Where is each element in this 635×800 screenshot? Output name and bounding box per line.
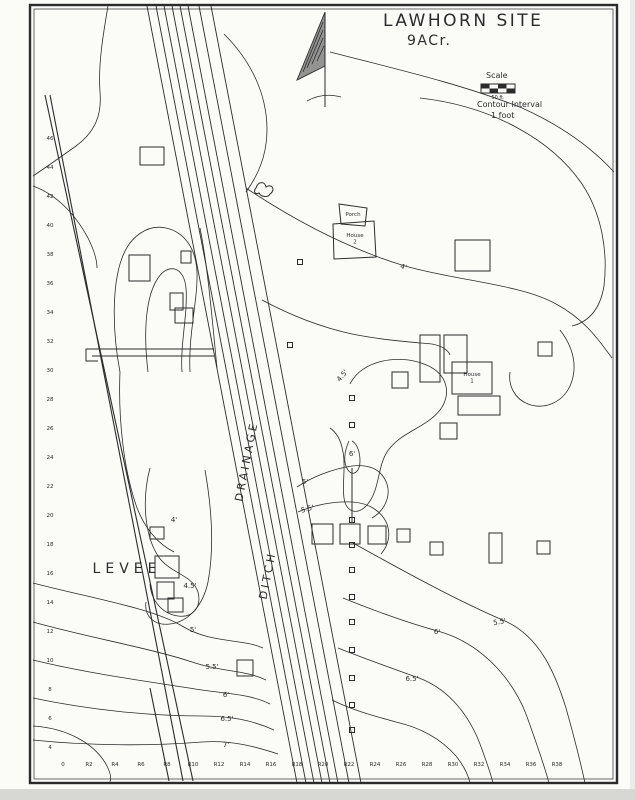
house-label: House2	[346, 233, 364, 246]
contour-elevation-label: 6.5'	[220, 715, 233, 723]
contour-line	[33, 6, 108, 176]
contour-line	[330, 52, 614, 172]
building-outline	[392, 372, 408, 388]
paper-edge-shadow-bottom	[0, 789, 635, 800]
axis-label-bottom: R14	[240, 762, 251, 768]
axis-label-left: 26	[47, 426, 54, 432]
scale-bar-segment	[507, 89, 516, 94]
axis-label-left: 30	[47, 368, 54, 374]
house-label: Porch	[345, 212, 361, 218]
building-outline	[420, 335, 440, 382]
contour-line	[145, 468, 199, 616]
drainage-ditch-line	[211, 6, 361, 783]
building-outline	[440, 423, 457, 439]
map-border-inner	[34, 9, 613, 779]
contour-line	[33, 726, 111, 783]
contour-elevation-label: 4'	[399, 262, 407, 271]
axis-label-left: 14	[47, 600, 54, 606]
map-title: LAWHORN SITE	[383, 11, 543, 31]
drainage-ditch-line	[156, 6, 306, 783]
axis-label-left: 22	[47, 484, 54, 490]
grid-stake-marker	[288, 343, 293, 348]
grid-stake-marker	[350, 568, 355, 573]
contour-line	[246, 188, 612, 358]
axis-label-left: 34	[47, 310, 54, 316]
axis-label-left: 10	[47, 658, 54, 664]
scale-label: Scale	[486, 71, 508, 80]
axis-label-left: 40	[47, 223, 54, 229]
axis-label-bottom: R34	[500, 762, 511, 768]
axis-label-bottom: R10	[188, 762, 199, 768]
axis-label-bottom: R2	[85, 762, 92, 768]
axis-label-left: 8	[48, 687, 52, 693]
axis-label-bottom: R16	[266, 762, 277, 768]
building-outline	[129, 255, 150, 281]
drainage-ditch-line	[147, 6, 297, 783]
axis-label-left: 24	[47, 455, 54, 461]
grid-stake-marker	[350, 423, 355, 428]
building-outline	[489, 533, 502, 563]
axis-label-bottom: R22	[344, 762, 355, 768]
contour-elevation-label: 6'	[223, 691, 229, 699]
building-outline	[181, 251, 191, 263]
building-outline	[537, 541, 550, 554]
drainage-ditch-line	[180, 6, 330, 783]
grid-stake-marker	[350, 648, 355, 653]
drainage-ditch-line	[164, 6, 314, 783]
drainage-label: DRAINAGE	[232, 420, 260, 502]
building-outline	[430, 542, 443, 555]
axis-label-bottom: R8	[163, 762, 171, 768]
axis-label-bottom: R32	[474, 762, 485, 768]
house-label: House1	[463, 372, 481, 385]
axis-label-left: 6	[48, 716, 52, 722]
site-map-canvas: 50 ft.LEVEEDRAINAGEDITCH4'4'4.5'4.5'5'5.…	[0, 0, 635, 800]
contour-line	[262, 300, 450, 355]
building-outline	[170, 293, 183, 310]
grid-stake-marker	[350, 620, 355, 625]
contour-line	[33, 740, 278, 754]
contour-line	[510, 330, 574, 406]
ditch-label: DITCH	[257, 550, 279, 600]
contour-line	[33, 186, 97, 268]
contour-elevation-label: 4.5'	[335, 368, 350, 383]
axis-label-left: 42	[47, 194, 54, 200]
contour-elevation-label: 4'	[171, 516, 177, 524]
building-outline	[538, 342, 552, 356]
contour-line	[338, 648, 493, 783]
scale-bar-segment	[498, 84, 507, 89]
scale-bar-segment	[481, 84, 490, 89]
axis-label-left: 44	[47, 165, 54, 171]
axis-label-bottom: R12	[214, 762, 225, 768]
grid-stake-marker	[350, 595, 355, 600]
contour-line	[420, 98, 605, 326]
axis-label-left: 36	[47, 281, 54, 287]
axis-label-bottom: R6	[137, 762, 145, 768]
contour-line	[33, 622, 266, 680]
axis-label-left: 28	[47, 397, 54, 403]
axis-label-bottom: R36	[526, 762, 537, 768]
axis-label-bottom: R38	[552, 762, 563, 768]
building-outline	[444, 335, 467, 373]
axis-label-bottom: R24	[370, 762, 381, 768]
contour-interval-label: Contour Interval	[477, 100, 542, 109]
axis-label-bottom: R4	[111, 762, 119, 768]
axis-label-left: 32	[47, 339, 54, 345]
levee-line	[50, 95, 183, 781]
paper-edge-shadow-right	[630, 0, 635, 800]
contour-elevation-label: 6'	[434, 628, 440, 636]
axis-label-left: 16	[47, 571, 54, 577]
building-outline	[312, 524, 333, 544]
axis-label-bottom: 0	[61, 762, 65, 768]
contour-elevation-label: 5'	[302, 478, 308, 486]
north-arrow-base	[307, 95, 341, 101]
contour-elevation-label: 5.5'	[493, 617, 507, 627]
contour-elevation-label: 5'	[190, 626, 196, 634]
contour-line	[114, 227, 197, 372]
drainage-ditch-line	[172, 6, 322, 783]
axis-label-bottom: R30	[448, 762, 459, 768]
contour-elevation-label: 5.5'	[300, 503, 315, 514]
map-feature-line	[255, 183, 273, 197]
axis-label-left: 20	[47, 513, 54, 519]
building-outline	[157, 582, 174, 599]
grid-stake-marker	[350, 703, 355, 708]
building-outline	[368, 526, 386, 544]
building-outline	[140, 147, 164, 165]
site-number: 9ACr.	[407, 33, 451, 49]
building-outline	[340, 524, 360, 544]
contour-elevation-label: 5.5'	[205, 663, 218, 671]
scale-bar-segment	[490, 89, 499, 94]
building-outline	[455, 240, 490, 271]
site-map-page: 50 ft.LEVEEDRAINAGEDITCH4'4'4.5'4.5'5'5.…	[0, 0, 635, 800]
building-outline	[168, 598, 183, 612]
axis-label-bottom: R26	[396, 762, 407, 768]
axis-label-left: 38	[47, 252, 54, 258]
axis-label-left: 12	[47, 629, 54, 635]
levee-label: LEVEE	[93, 561, 162, 577]
axis-label-bottom: R28	[422, 762, 433, 768]
grid-stake-marker	[298, 260, 303, 265]
contour-interval-value: 1 foot	[491, 111, 514, 120]
grid-stake-marker	[350, 676, 355, 681]
contour-elevation-label: 6.5'	[405, 675, 418, 683]
axis-label-left: 4	[48, 745, 52, 751]
axis-label-left: 18	[47, 542, 54, 548]
north-arrow-flag	[297, 12, 325, 80]
drainage-ditch-line	[199, 6, 349, 783]
contour-line	[146, 269, 187, 372]
grid-stake-marker	[350, 396, 355, 401]
building-outline	[458, 396, 500, 415]
levee-line	[45, 95, 193, 781]
building-outline	[150, 527, 164, 539]
map-feature-line	[86, 349, 98, 361]
contour-elevation-label: 4.5'	[183, 582, 196, 590]
axis-label-left: 46	[47, 136, 54, 142]
map-border-outer	[30, 5, 617, 783]
contour-elevation-label: 6'	[349, 450, 355, 458]
axis-label-bottom: R20	[318, 762, 329, 768]
contour-elevation-label: 7'	[223, 741, 229, 749]
contour-line	[343, 598, 549, 783]
contour-line	[353, 543, 585, 783]
axis-label-bottom: R18	[292, 762, 303, 768]
building-outline	[397, 529, 410, 542]
